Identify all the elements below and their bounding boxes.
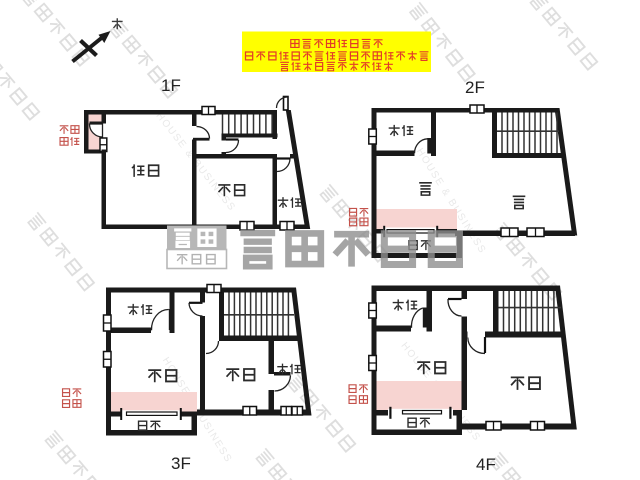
svg-text:4F: 4F — [476, 455, 496, 474]
svg-text:3F: 3F — [171, 454, 191, 473]
svg-text:1F: 1F — [161, 76, 181, 95]
svg-text:2F: 2F — [465, 78, 485, 97]
